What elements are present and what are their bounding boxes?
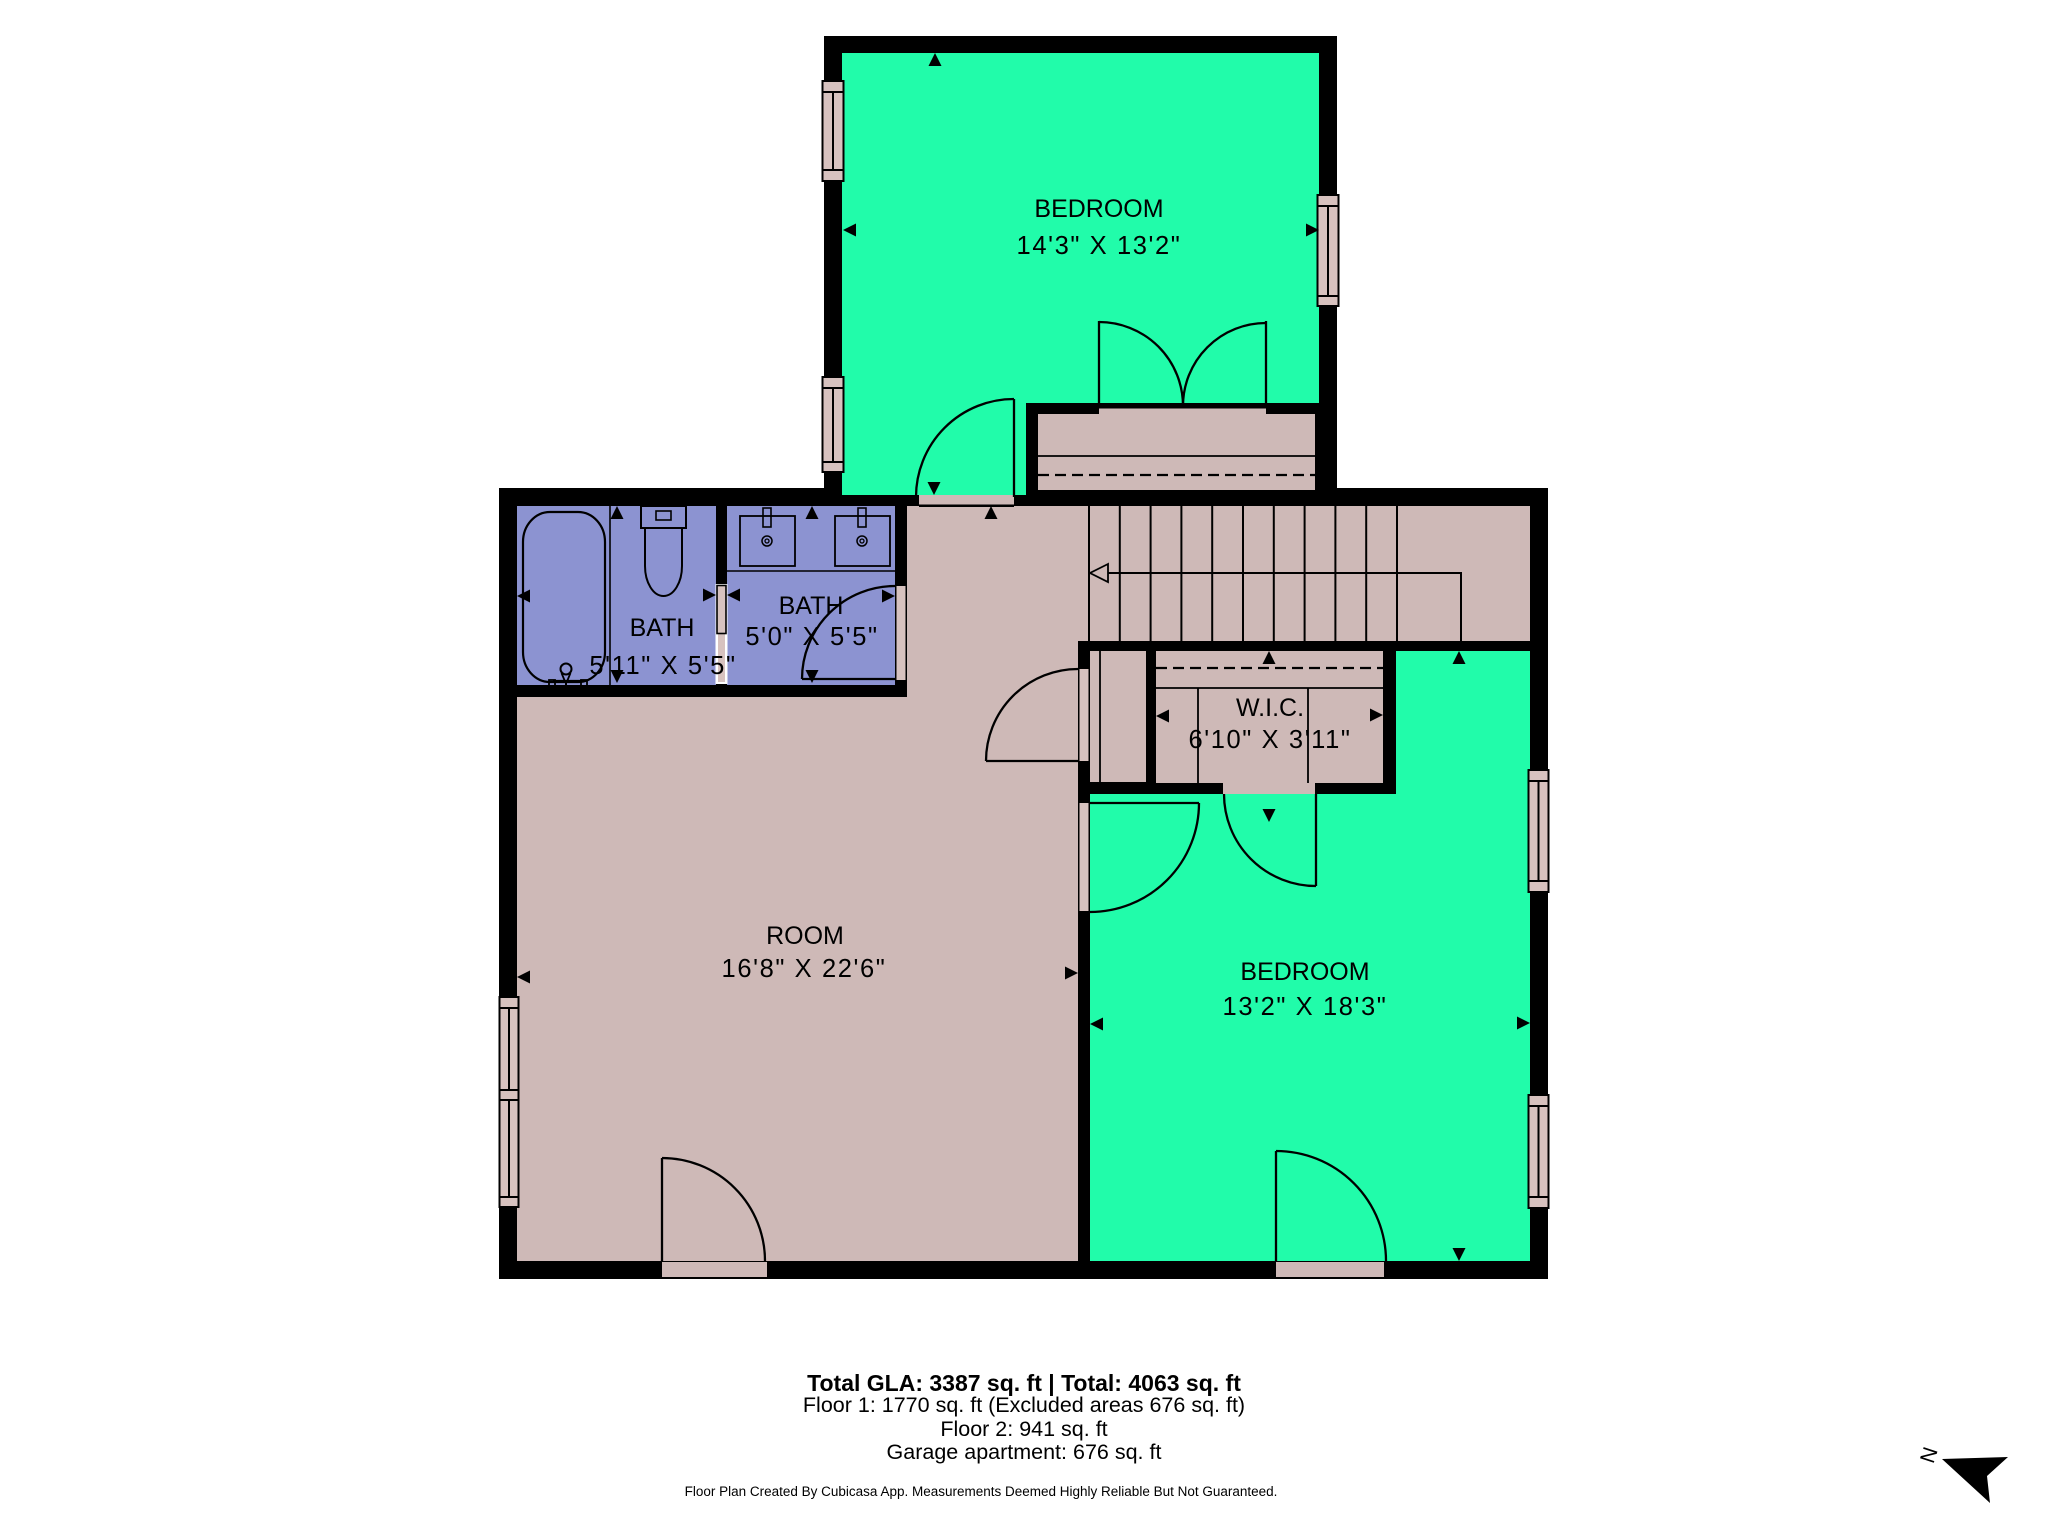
svg-text:W.I.C.: W.I.C. <box>1236 694 1304 722</box>
svg-text:5'0" X 5'5": 5'0" X 5'5" <box>745 623 878 651</box>
svg-text:BEDROOM: BEDROOM <box>1240 958 1369 986</box>
svg-text:5'11" X 5'5": 5'11" X 5'5" <box>589 652 736 680</box>
svg-text:BATH: BATH <box>630 614 695 642</box>
svg-text:Floor 2: 941 sq. ft: Floor 2: 941 sq. ft <box>940 1417 1107 1441</box>
svg-text:Garage apartment: 676 sq. ft: Garage apartment: 676 sq. ft <box>887 1440 1162 1464</box>
svg-text:13'2" X 18'3": 13'2" X 18'3" <box>1223 993 1388 1021</box>
svg-text:ROOM: ROOM <box>766 922 844 950</box>
svg-text:BATH: BATH <box>779 592 844 620</box>
svg-text:6'10" X 3'11": 6'10" X 3'11" <box>1188 726 1351 754</box>
svg-text:Floor 1: 1770 sq. ft (Excluded: Floor 1: 1770 sq. ft (Excluded areas 676… <box>803 1393 1245 1417</box>
svg-text:14'3" X 13'2": 14'3" X 13'2" <box>1017 232 1182 260</box>
svg-text:Floor Plan Created By Cubicasa: Floor Plan Created By Cubicasa App. Meas… <box>685 1484 1278 1499</box>
svg-text:BEDROOM: BEDROOM <box>1034 195 1163 223</box>
svg-text:16'8" X 22'6": 16'8" X 22'6" <box>722 955 887 983</box>
